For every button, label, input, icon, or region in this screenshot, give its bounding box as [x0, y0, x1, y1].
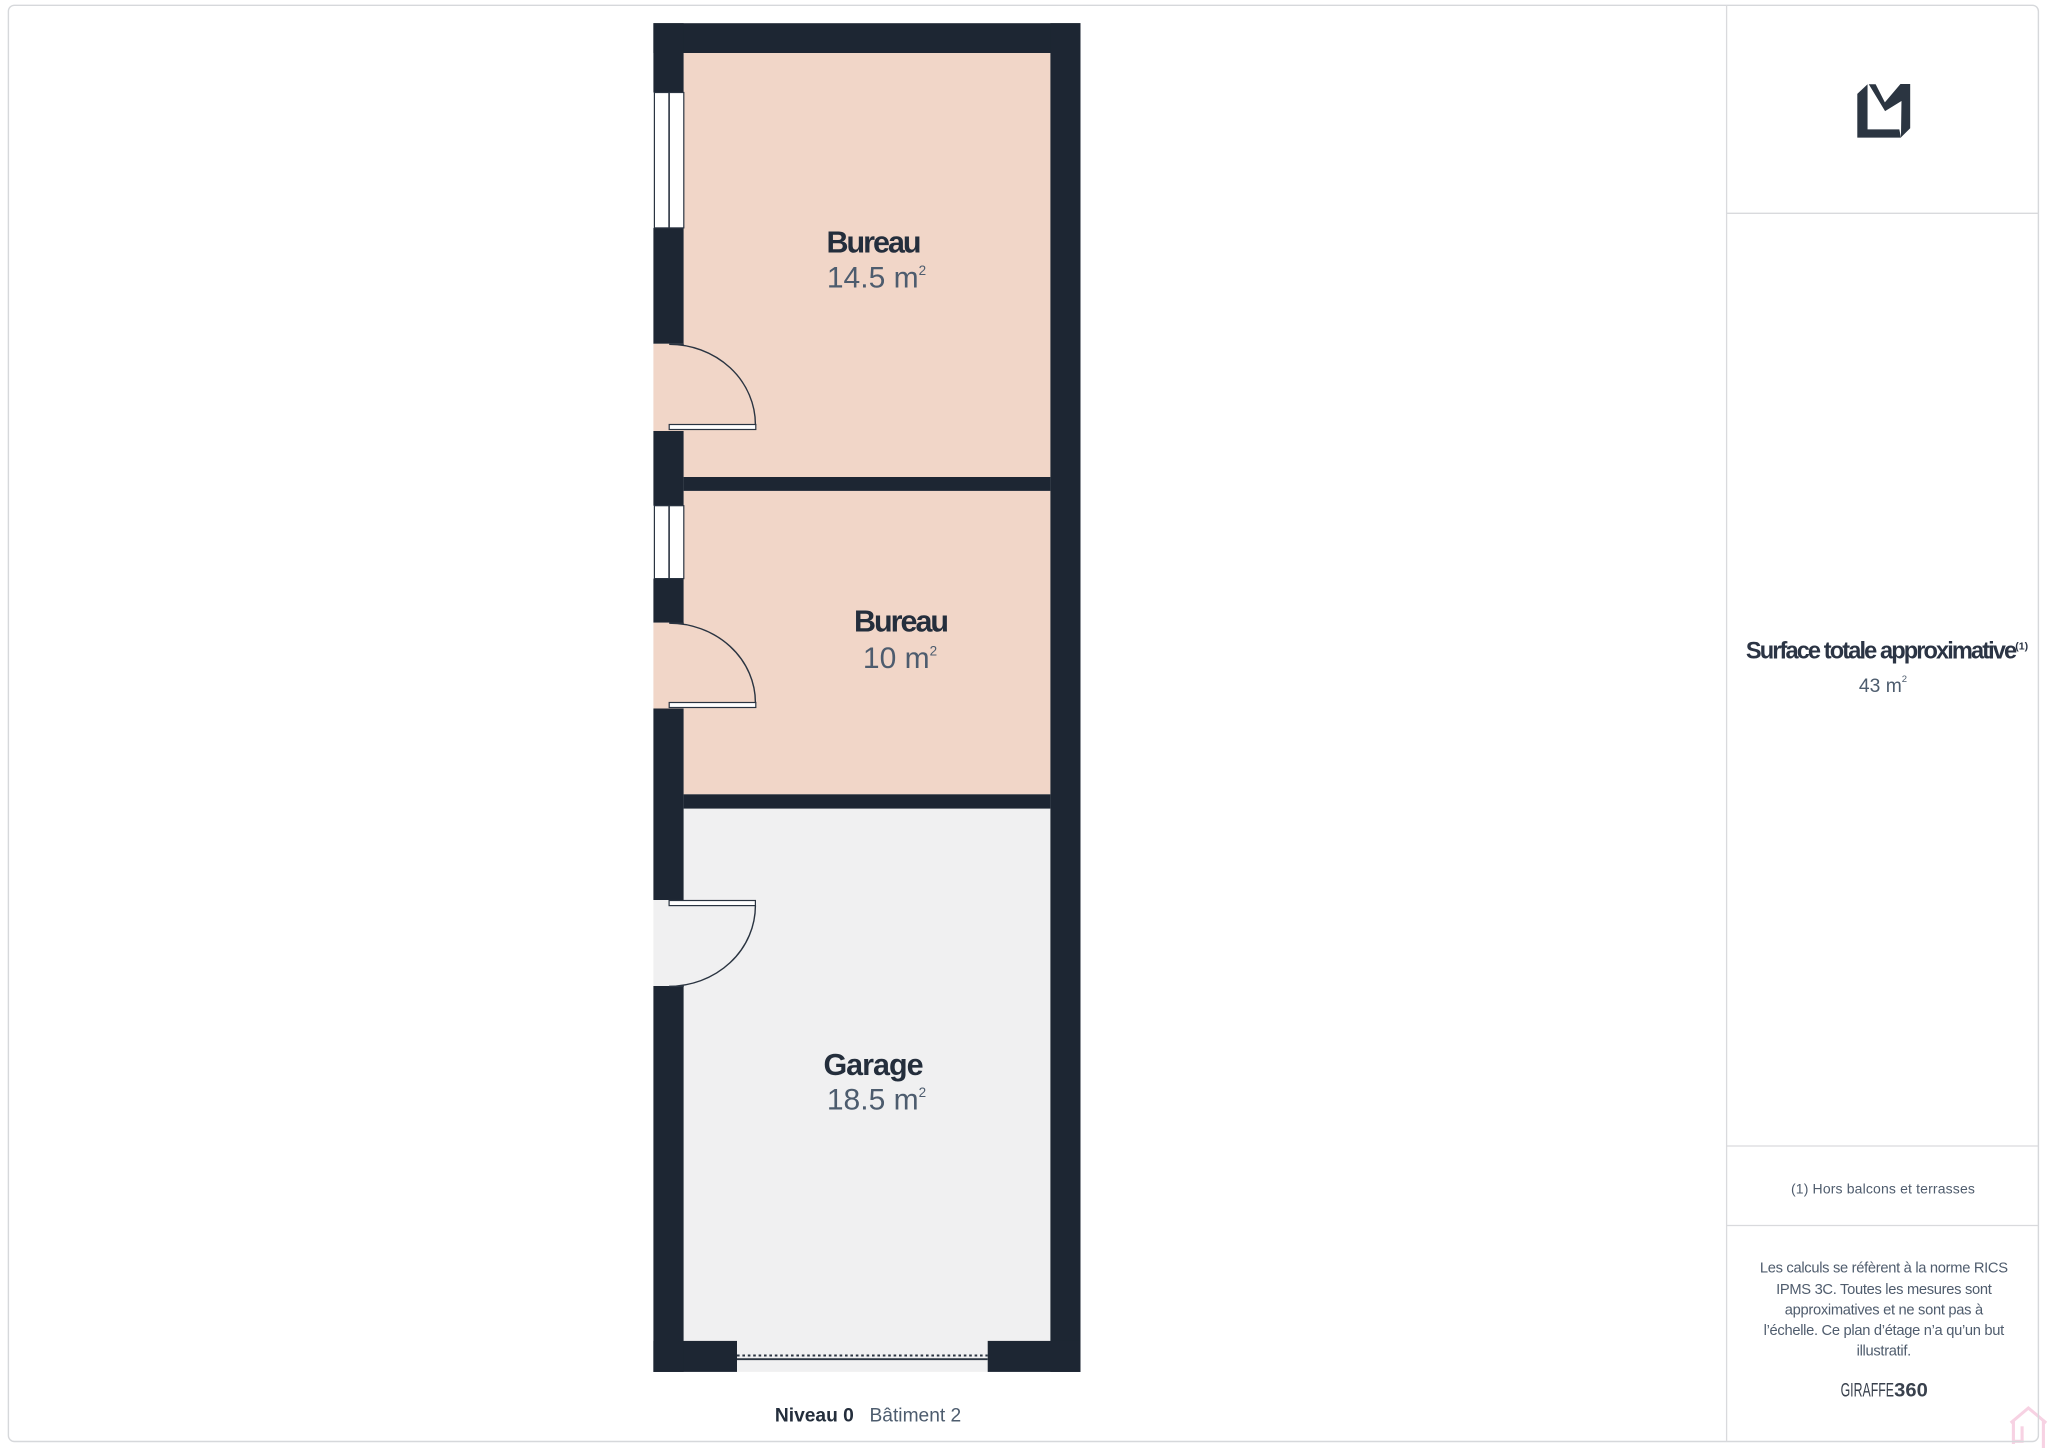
svg-text:GIRAFFE: GIRAFFE: [1841, 1380, 1894, 1402]
svg-text:Les calculs se réfèrent à la n: Les calculs se réfèrent à la norme RICS: [1760, 1261, 2008, 1277]
svg-text:18.5 m2: 18.5 m2: [827, 1084, 926, 1117]
svg-text:14.5 m2: 14.5 m2: [827, 262, 926, 295]
svg-text:Bureau: Bureau: [854, 605, 947, 639]
svg-text:approximatives et ne sont pas: approximatives et ne sont pas à: [1785, 1302, 1984, 1318]
svg-text:l’échelle. Ce plan d’étage n’a: l’échelle. Ce plan d’étage n’a qu’un but: [1764, 1323, 2005, 1339]
svg-text:(1) Hors balcons et terrasses: (1) Hors balcons et terrasses: [1791, 1180, 1975, 1196]
svg-text:Niveau 0: Niveau 0: [775, 1406, 854, 1427]
svg-text:10 m2: 10 m2: [863, 642, 937, 675]
svg-text:IPMS 3C. Toutes les mesures so: IPMS 3C. Toutes les mesures sont: [1776, 1282, 1992, 1298]
svg-text:Garage: Garage: [823, 1048, 922, 1082]
svg-text:360: 360: [1894, 1380, 1928, 1402]
svg-text:Surface totale approximative(1: Surface totale approximative(1): [1746, 639, 2028, 665]
svg-text:Bâtiment 2: Bâtiment 2: [870, 1406, 962, 1427]
svg-text:43 m2: 43 m2: [1859, 674, 1907, 697]
svg-text:Bureau: Bureau: [826, 226, 919, 260]
svg-text:illustratif.: illustratif.: [1857, 1344, 1911, 1360]
